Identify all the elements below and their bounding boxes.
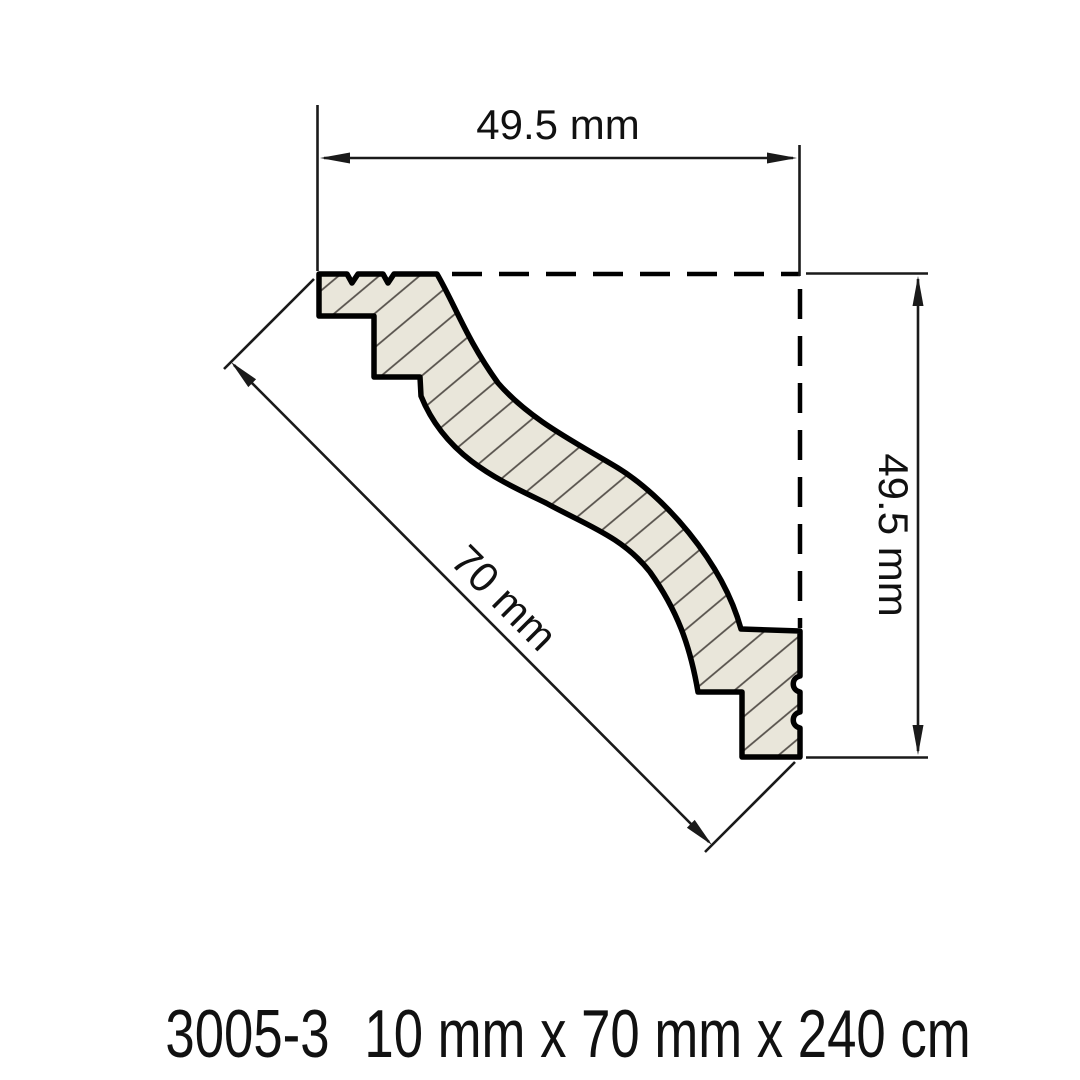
- dimension-width: 49.5 mm: [318, 101, 800, 276]
- profile-hatching: [319, 274, 800, 757]
- extension-line-top-left: [224, 279, 314, 369]
- technical-drawing: 49.5 mm 49.5 mm 70 mm: [0, 0, 1080, 1080]
- extension-line-bottom-right: [705, 762, 795, 852]
- arrowhead-left: [320, 153, 350, 164]
- width-dimension-label: 49.5 mm: [476, 101, 639, 148]
- product-code: 3005-3: [165, 1000, 329, 1068]
- product-dimensions: 10 mm x 70 mm x 240 cm: [364, 1000, 970, 1068]
- length-dimension-label: 70 mm: [442, 536, 566, 660]
- arrowhead-top: [913, 276, 924, 306]
- arrowhead-bottom: [913, 725, 924, 755]
- product-caption: 3005-3 10 mm x 70 mm x 240 cm: [165, 1000, 970, 1068]
- dimension-height: 49.5 mm: [806, 274, 928, 758]
- arrowhead-right: [767, 153, 797, 164]
- molding-profile: [319, 274, 800, 757]
- height-dimension-label: 49.5 mm: [870, 453, 917, 616]
